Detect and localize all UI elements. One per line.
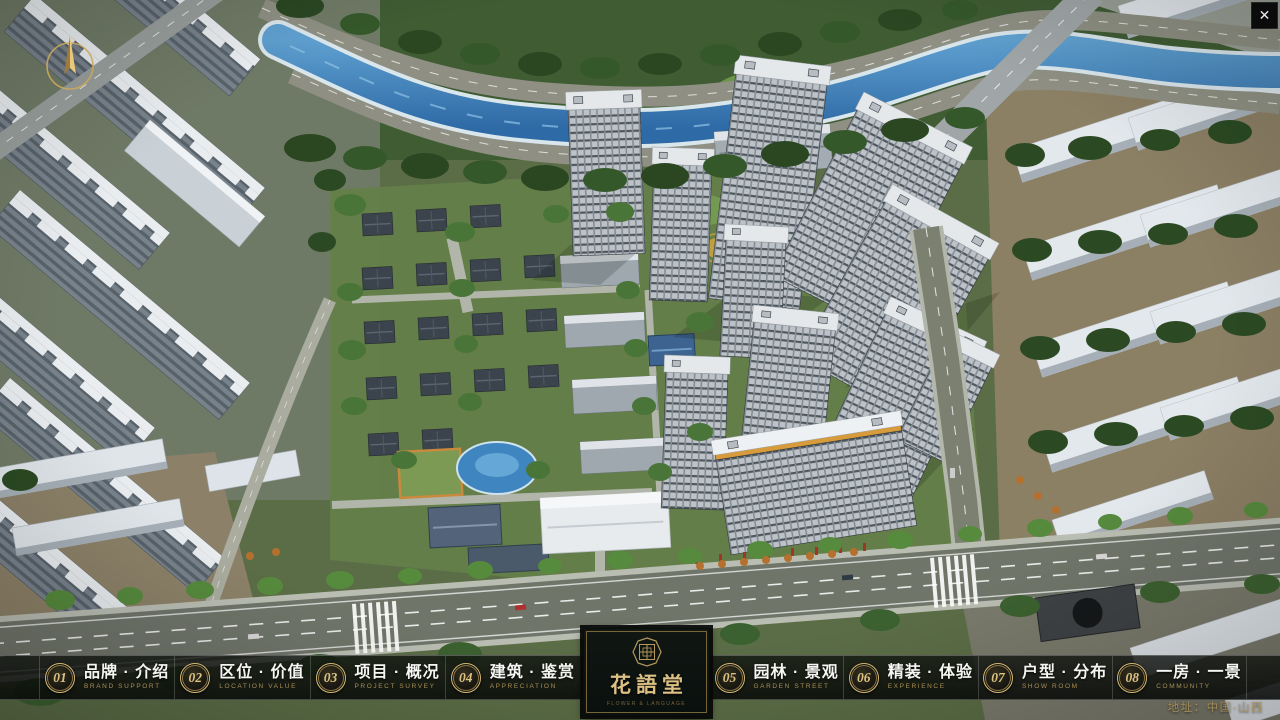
menu-number: 05 [723,670,737,686]
menu-number: 06 [857,670,871,686]
vignette-overlay [0,0,1280,720]
menu-label-zh: 建筑 · 鉴赏 [490,665,575,681]
menu-label-en: BRAND SUPPORT [84,684,161,691]
logo-subtitle: FLOWER & LANGUAGE [607,701,686,707]
menu-number: 07 [991,670,1005,686]
menu-number-badge: 06 [849,663,879,693]
menu-number-badge: 02 [180,663,210,693]
close-button[interactable]: ✕ [1251,2,1278,29]
menu-number-badge: 03 [316,663,346,693]
menu-label-en: SHOW ROOM [1022,684,1079,691]
menu-label-zh: 园林 · 景观 [754,665,839,681]
menu-number-badge: 01 [45,663,75,693]
menu-label-zh: 户型 · 分布 [1022,665,1107,681]
menu-item-floorplan-distribution[interactable]: 07 户型 · 分布SHOW ROOM [979,656,1113,699]
menu-label-zh: 精装 · 体验 [888,665,973,681]
menu-group-left: 01 品牌 · 介绍BRAND SUPPORT 02 区位 · 价值LOCATI… [39,656,581,699]
menu-label-en: EXPERIENCE [888,684,946,691]
menu-number: 03 [324,670,338,686]
menu-number-badge: 05 [715,663,745,693]
address-text: 地址：中国·山西 [1168,699,1264,715]
menu-number-badge: 08 [1117,663,1147,693]
menu-number-badge: 07 [983,663,1013,693]
menu-label-en: PROJECT SURVEY [355,684,436,691]
map-3d-viewport[interactable] [0,0,1280,720]
logo-panel[interactable]: 花語堂 FLOWER & LANGUAGE [583,628,710,716]
menu-label-zh: 区位 · 价值 [219,665,304,681]
presentation-stage: ✕ 01 品牌 · 介绍BRAND SUPPORT 02 区位 · 价值LOCA… [0,0,1280,720]
logo-seal-icon [632,637,662,667]
menu-label-zh: 项目 · 概况 [355,665,440,681]
menu-number: 04 [459,670,473,686]
menu-label-en: LOCATION VALUE [219,684,297,691]
menu-item-architecture-appreciation[interactable]: 04 建筑 · 鉴赏APPRECIATION [446,656,581,699]
menu-number: 02 [189,670,203,686]
menu-item-room-view[interactable]: 08 一房 · 一景COMMUNITY [1113,656,1247,699]
menu-label-en: COMMUNITY [1156,684,1210,691]
menu-label-en: APPRECIATION [490,684,557,691]
menu-number: 01 [53,670,67,686]
logo-title: 花語堂 [605,669,688,699]
menu-item-location-value[interactable]: 02 区位 · 价值LOCATION VALUE [175,656,310,699]
menu-item-garden-landscape[interactable]: 05 园林 · 景观GARDEN STREET [710,656,844,699]
menu-item-brand-intro[interactable]: 01 品牌 · 介绍BRAND SUPPORT [40,656,175,699]
menu-label-zh: 一房 · 一景 [1156,665,1241,681]
menu-label-zh: 品牌 · 介绍 [84,665,169,681]
menu-number: 08 [1126,670,1140,686]
masterplan-render [0,0,1280,720]
menu-number-badge: 04 [451,663,481,693]
menu-item-interior-experience[interactable]: 06 精装 · 体验EXPERIENCE [844,656,978,699]
menu-label-en: GARDEN STREET [754,684,830,691]
menu-item-project-overview[interactable]: 03 项目 · 概况PROJECT SURVEY [311,656,446,699]
menu-group-right: 05 园林 · 景观GARDEN STREET 06 精装 · 体验EXPERI… [710,656,1247,699]
